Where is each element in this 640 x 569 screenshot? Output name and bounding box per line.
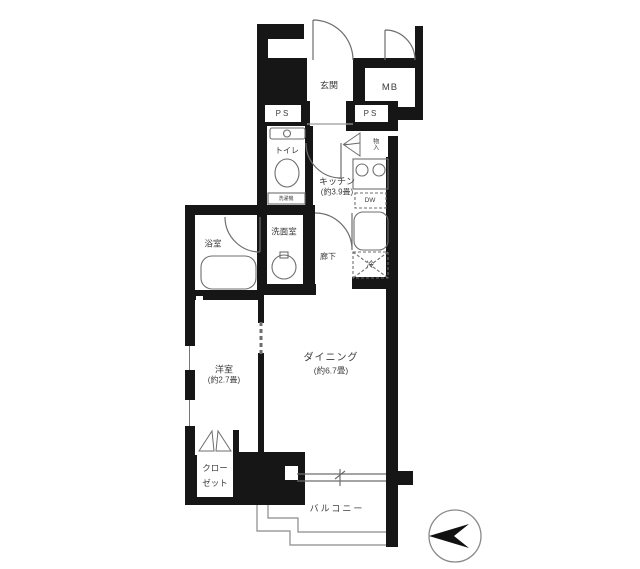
wall xyxy=(185,497,233,505)
balcony-label: バルコニー xyxy=(310,503,365,514)
washroom-label: 洗面室 xyxy=(271,227,297,238)
bedroom-name: 洋室 xyxy=(208,364,240,375)
dishwasher-label: DW xyxy=(365,196,376,204)
meter-box-label: MB xyxy=(382,82,398,94)
entrance-label: 玄関 xyxy=(320,80,338,91)
hallway-label: 廊下 xyxy=(320,252,336,262)
wall xyxy=(386,136,398,547)
compass xyxy=(429,510,481,562)
wall xyxy=(303,215,315,287)
washroom-door-icon xyxy=(315,213,352,250)
kitchen-sink-icon xyxy=(354,212,388,250)
stove-burner-icon xyxy=(373,164,385,176)
wall-niche xyxy=(285,466,298,480)
bedroom-size: (約2.7畳) xyxy=(208,376,240,386)
bathtub-icon xyxy=(201,256,256,289)
kitchen-label: キッチン (約3.9畳) xyxy=(319,176,355,197)
dining-name: ダイニング xyxy=(304,352,359,365)
closet-line2: ゼット xyxy=(202,476,228,491)
wall xyxy=(415,26,423,111)
kitchen-size: (約3.9畳) xyxy=(319,188,355,198)
meter-box-door-icon xyxy=(385,30,415,60)
washbasin-icon xyxy=(272,255,296,279)
dining-label: ダイニング (約6.7畳) xyxy=(304,352,359,375)
washer-label: 洗濯機 xyxy=(278,195,293,201)
wall xyxy=(398,471,413,485)
toilet-label: トイレ xyxy=(275,146,299,156)
closet-label: クロー ゼット xyxy=(202,461,228,491)
pipe-space-right-label: PS xyxy=(364,109,379,119)
wall xyxy=(352,277,388,289)
wall xyxy=(305,126,313,206)
kitchen-name: キッチン xyxy=(319,176,355,187)
balcony-window xyxy=(297,469,386,486)
closet-line1: クロー xyxy=(202,461,228,476)
closet-folding-door-icon xyxy=(199,431,214,451)
bathroom-door-icon xyxy=(225,217,260,252)
wall xyxy=(353,58,423,68)
refrigerator-label: 冷 xyxy=(367,260,375,270)
bathroom-label: 浴室 xyxy=(204,239,221,250)
wall xyxy=(258,353,264,452)
floorplan-canvas: 玄関 MB PS PS トイレ 物入 キッチン (約3.9畳) 洗濯機 DW 冷… xyxy=(0,0,640,569)
wall xyxy=(258,284,316,295)
storage-label: 物入 xyxy=(370,138,378,150)
pipe-space-left-label: PS xyxy=(276,109,291,119)
wall xyxy=(258,295,264,323)
storage-folding-door-icon xyxy=(344,143,360,156)
dining-size: (約6.7畳) xyxy=(304,365,359,376)
stove-burner-icon xyxy=(356,164,368,176)
entrance-door-icon xyxy=(313,20,353,60)
toilet-tank-faucet-icon xyxy=(284,130,291,137)
wall-niche xyxy=(196,296,203,303)
bedroom-label: 洋室 (約2.7畳) xyxy=(208,364,240,385)
wall xyxy=(233,430,239,452)
north-arrow-icon xyxy=(429,524,469,548)
closet-folding-door-icon xyxy=(216,431,231,451)
toilet-bowl-icon xyxy=(275,159,299,187)
wall xyxy=(185,205,315,215)
wall xyxy=(257,126,267,206)
